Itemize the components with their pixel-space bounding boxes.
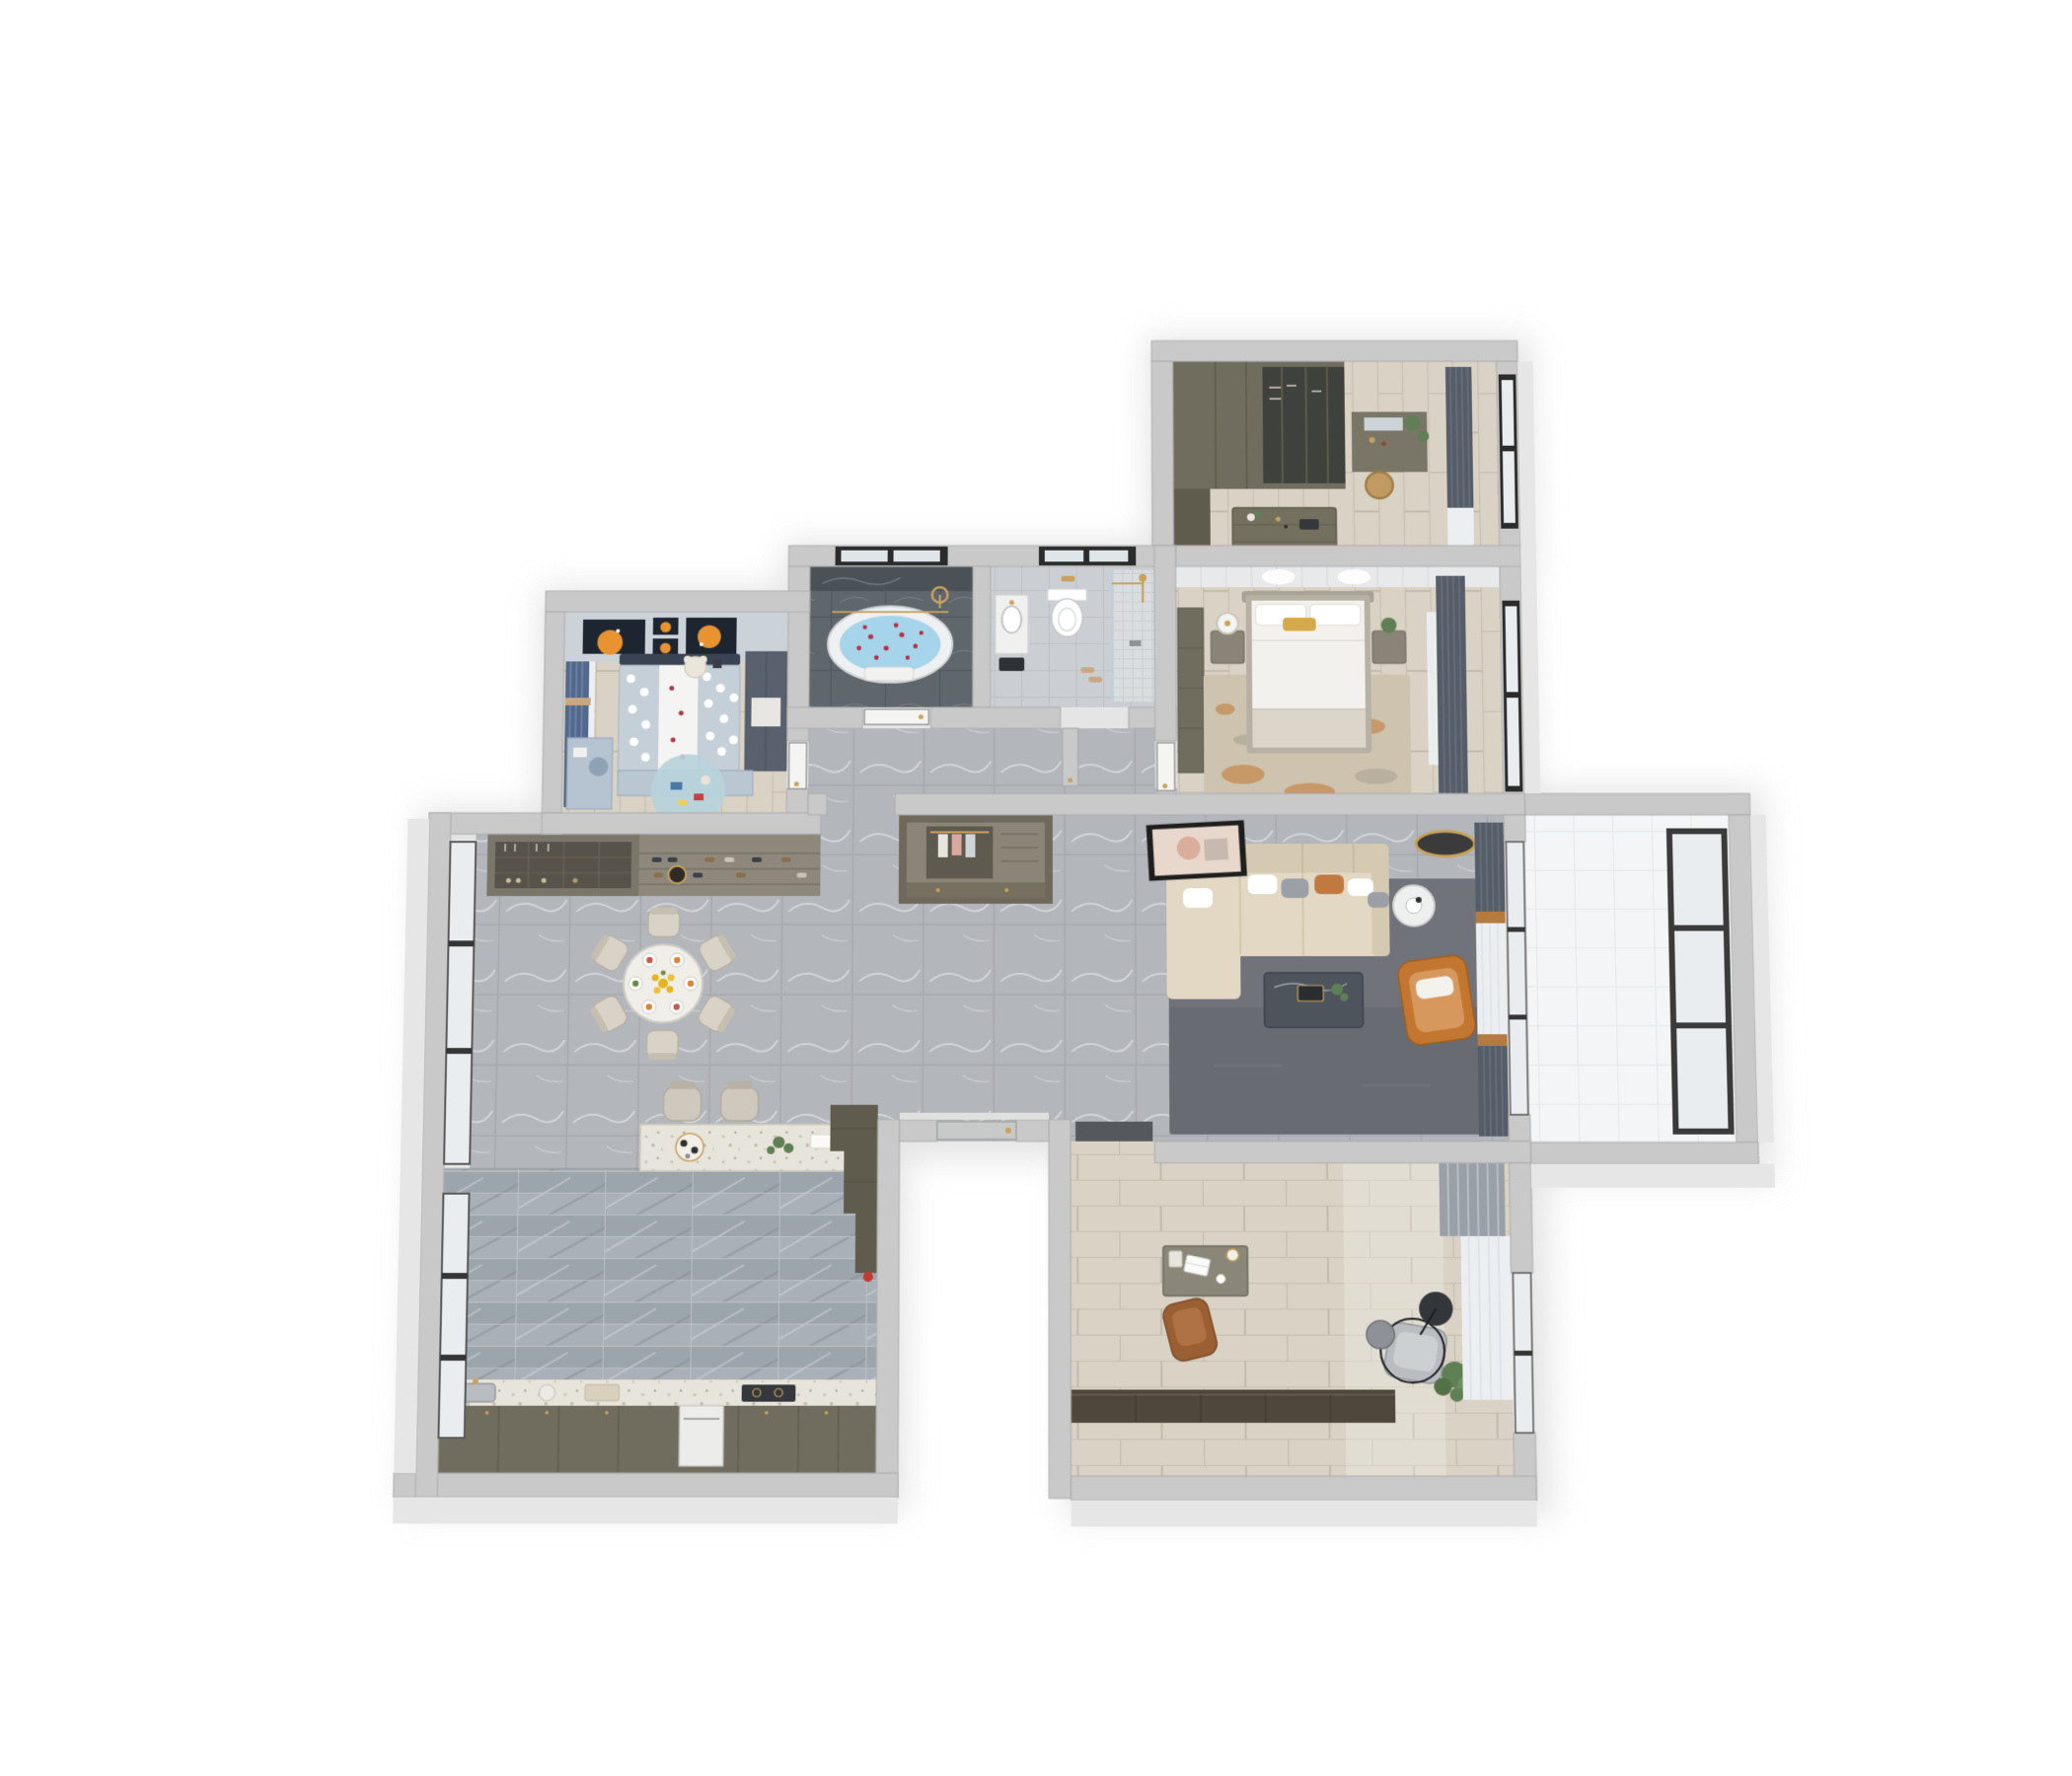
closet-windows bbox=[1499, 374, 1518, 528]
kids-wardrobe bbox=[745, 652, 787, 771]
corridor-nook-floor bbox=[808, 728, 1155, 793]
kids-desk bbox=[566, 738, 613, 809]
bed-throw bbox=[1252, 709, 1366, 748]
balcony-panorama-window bbox=[1666, 829, 1735, 1135]
corridor-gap-floor bbox=[827, 793, 896, 814]
master-double-bed bbox=[1242, 591, 1376, 753]
rattan-basket bbox=[1366, 472, 1393, 498]
marble-coffee-table bbox=[1264, 973, 1363, 1027]
cooktop bbox=[742, 1384, 796, 1401]
round-dining-table bbox=[624, 944, 703, 1022]
desk-lamp bbox=[1226, 1249, 1238, 1261]
shoe-shelves bbox=[638, 834, 820, 896]
study-window bbox=[1513, 1273, 1533, 1433]
orange-accent-armchair bbox=[1396, 954, 1477, 1047]
glass-wardrobe bbox=[1262, 367, 1345, 483]
toy-deer bbox=[712, 659, 721, 668]
master-windows bbox=[1502, 601, 1522, 792]
study-side-table bbox=[1367, 1321, 1395, 1349]
master-door bbox=[1157, 743, 1175, 791]
gold-accent-pillow bbox=[1283, 618, 1316, 630]
dining-windows bbox=[444, 842, 476, 1163]
shower-room-window bbox=[1039, 547, 1136, 565]
kitchen-counter bbox=[438, 1378, 877, 1473]
round-side-table bbox=[1393, 885, 1435, 925]
floorplan-canvas bbox=[0, 0, 2072, 1776]
living-sliding-window bbox=[1506, 842, 1527, 1115]
bath-towel bbox=[864, 667, 913, 681]
red-kettle bbox=[863, 1272, 873, 1282]
apartment-3d-floorplan bbox=[0, 43, 2072, 1776]
bathroom-door bbox=[864, 709, 928, 725]
round-ceiling-light bbox=[1416, 831, 1475, 855]
built-in-oven bbox=[679, 1406, 723, 1466]
kitchen-windows bbox=[438, 1194, 469, 1439]
entry-closet bbox=[899, 815, 1053, 904]
vanity-basin bbox=[996, 595, 1029, 671]
study-door-mat bbox=[1075, 1122, 1152, 1142]
kids-room-door bbox=[788, 743, 806, 789]
shower-tile-floor bbox=[1114, 570, 1155, 702]
master-wardrobe-cabinet bbox=[1178, 608, 1205, 773]
leaning-art-frame bbox=[1147, 820, 1247, 881]
living-curtains bbox=[1474, 823, 1509, 1137]
vanity-with-mirror bbox=[1352, 411, 1430, 472]
closet-curtains bbox=[1445, 367, 1474, 546]
study-desk bbox=[1163, 1246, 1248, 1295]
dining-cabinet-band bbox=[486, 834, 821, 896]
bathroom-wall-band bbox=[810, 566, 973, 591]
pendant-light bbox=[668, 866, 686, 884]
shower-room-door bbox=[1063, 728, 1078, 785]
study-floor-entry-patch bbox=[1071, 1142, 1154, 1163]
bathroom-window bbox=[836, 547, 948, 565]
media-cabinet bbox=[1071, 1389, 1395, 1423]
